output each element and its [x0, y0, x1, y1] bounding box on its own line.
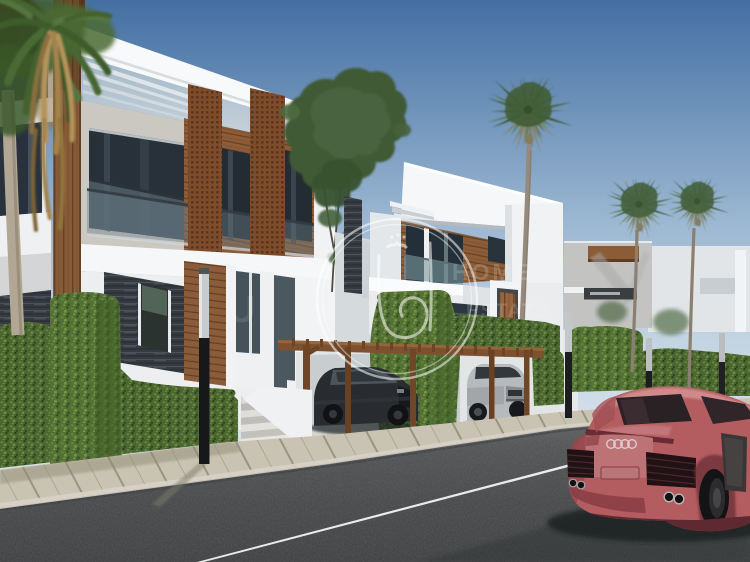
svg-text:U: U [228, 289, 255, 331]
svg-text:HOME: HOME [452, 259, 533, 285]
svg-text:ESTATE: ESTATE [466, 301, 550, 322]
